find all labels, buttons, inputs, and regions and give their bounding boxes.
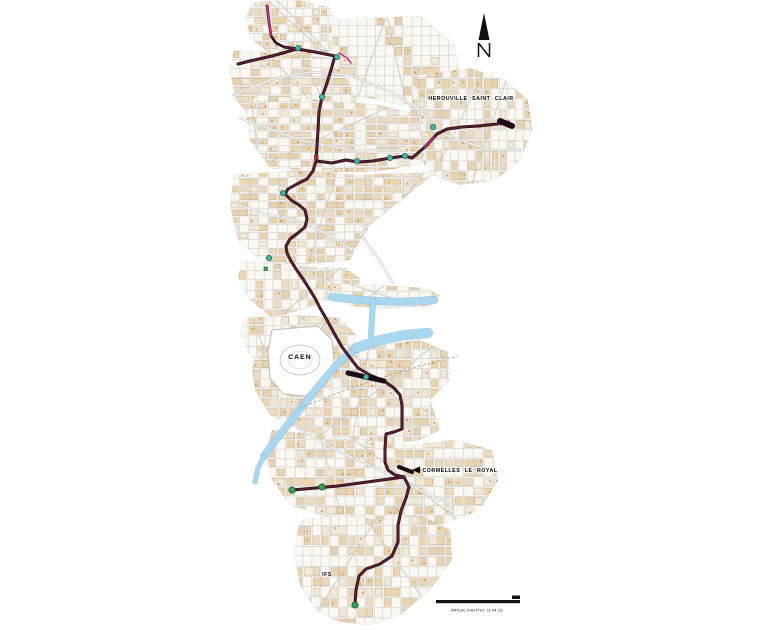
- scale-bar-caption: ARTEAC VIASTTES 13 44 23: [451, 609, 503, 613]
- label-cormelles-le-royal: CORMELLES LE ROYAL: [422, 468, 497, 474]
- scale-bar: ARTEAC VIASTTES 13 44 23: [436, 596, 520, 613]
- city-map-canvas: HEROUVILLE SAINT CLAIR CAEN CORMELLES LE…: [0, 0, 768, 630]
- basemap-buildings-layer: [229, 0, 546, 627]
- north-arrow-icon: [479, 13, 490, 57]
- label-ifs: IFS: [322, 572, 332, 578]
- map-page: HEROUVILLE SAINT CLAIR CAEN CORMELLES LE…: [0, 0, 768, 630]
- label-caen: CAEN: [288, 354, 312, 361]
- label-herouville-saint-clair: HEROUVILLE SAINT CLAIR: [428, 96, 513, 102]
